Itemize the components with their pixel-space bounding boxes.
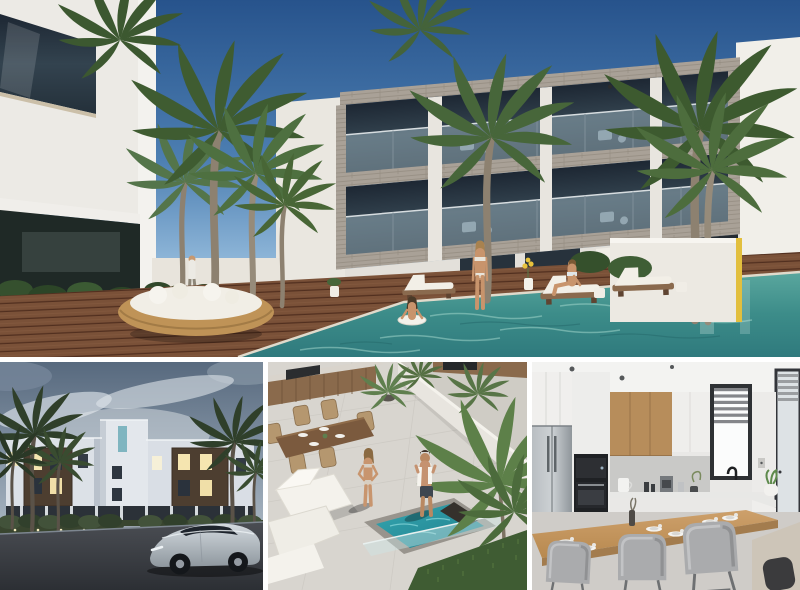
- upper-cabinets: [610, 392, 710, 456]
- photo-kitchen-interior: [532, 362, 800, 590]
- main-exterior-illustration: [0, 0, 800, 357]
- window-with-blinds: [710, 384, 752, 480]
- tall-cabinets-and-fridge: [532, 372, 610, 518]
- dusk-street-illustration: [0, 362, 263, 590]
- property-photo-collage: [0, 0, 800, 590]
- photo-street-view-dusk: [0, 362, 263, 590]
- photo-rooftop-terrace: [268, 362, 527, 590]
- kitchen-illustration: [532, 362, 800, 590]
- backsplash-and-counter-items: [610, 456, 710, 496]
- rooftop-terrace-illustration: [268, 362, 527, 590]
- yellow-accent-stripe: [736, 238, 742, 322]
- photo-main-exterior-pool: [0, 0, 800, 357]
